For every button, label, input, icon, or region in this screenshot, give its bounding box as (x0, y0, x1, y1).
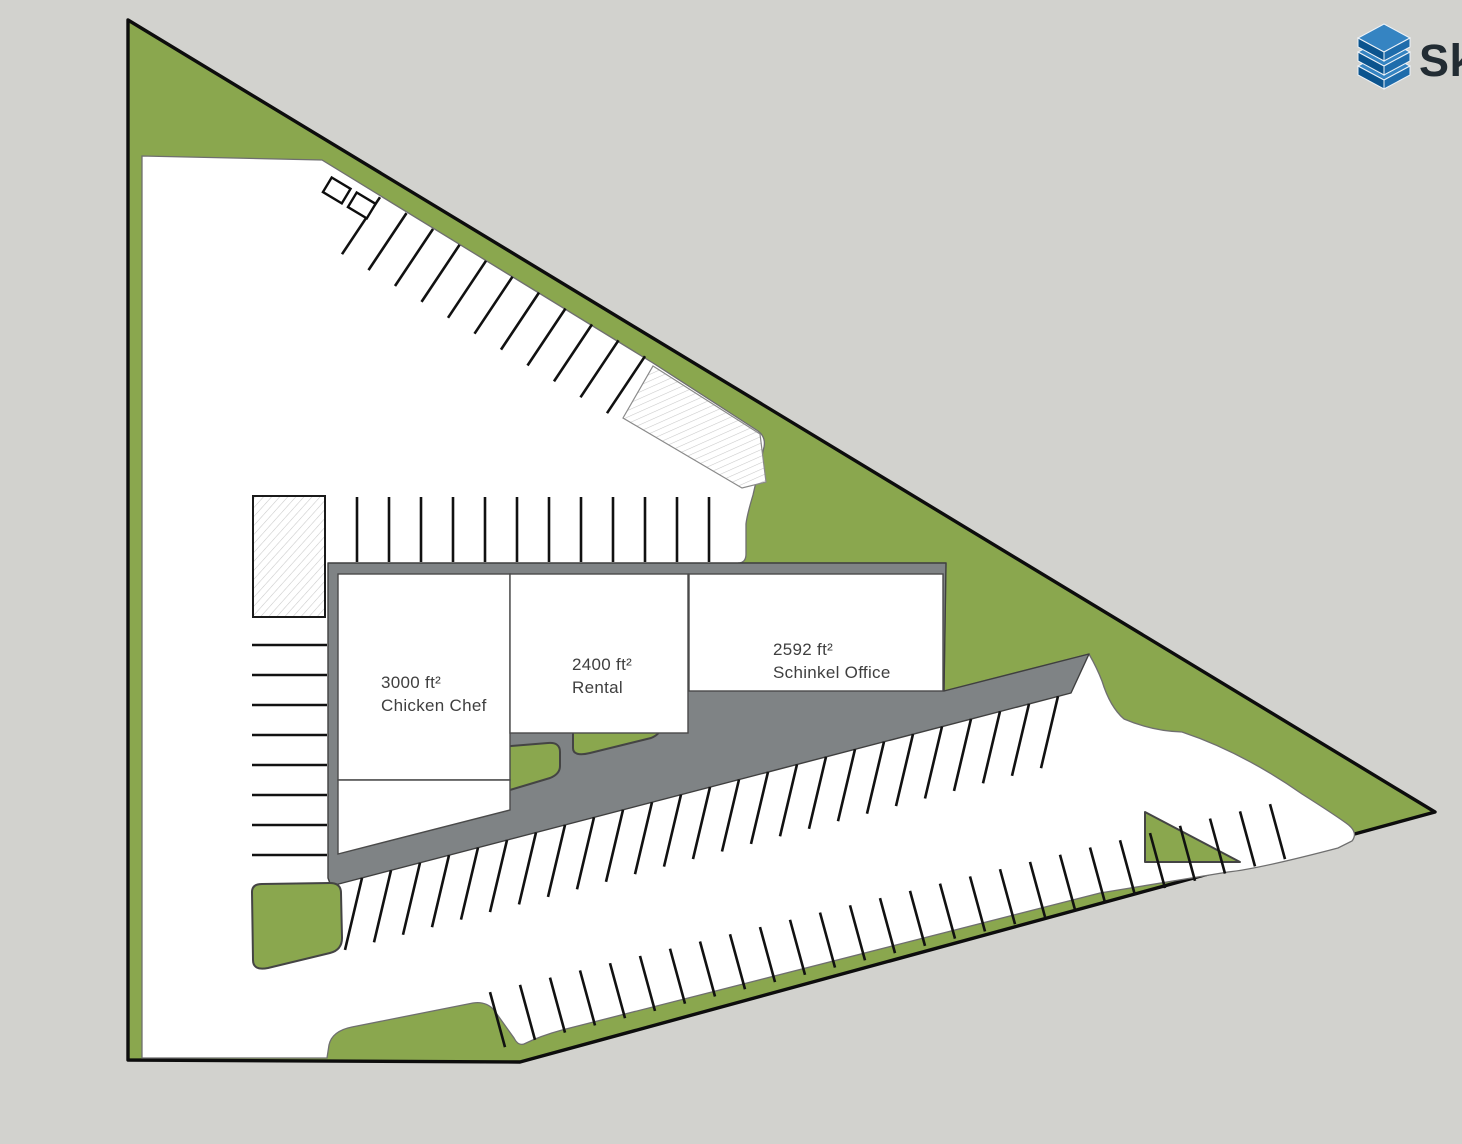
sketchup-logo-text: Sk (1419, 35, 1462, 86)
label-rental-name: Rental (572, 678, 623, 697)
site-plan-canvas: 3000 ft² Chicken Chef 2400 ft² Rental 25… (0, 0, 1462, 1144)
sketchup-cube-icon (1358, 24, 1410, 89)
building-rental (510, 574, 688, 733)
label-schinkel-area: 2592 ft² (773, 640, 833, 659)
site-plan-page: 3000 ft² Chicken Chef 2400 ft² Rental 25… (0, 0, 1462, 1144)
hatched-pad-west (253, 496, 325, 617)
label-rental-area: 2400 ft² (572, 655, 632, 674)
label-schinkel-name: Schinkel Office (773, 663, 891, 682)
label-chicken-chef-name: Chicken Chef (381, 696, 487, 715)
label-chicken-chef-area: 3000 ft² (381, 673, 441, 692)
